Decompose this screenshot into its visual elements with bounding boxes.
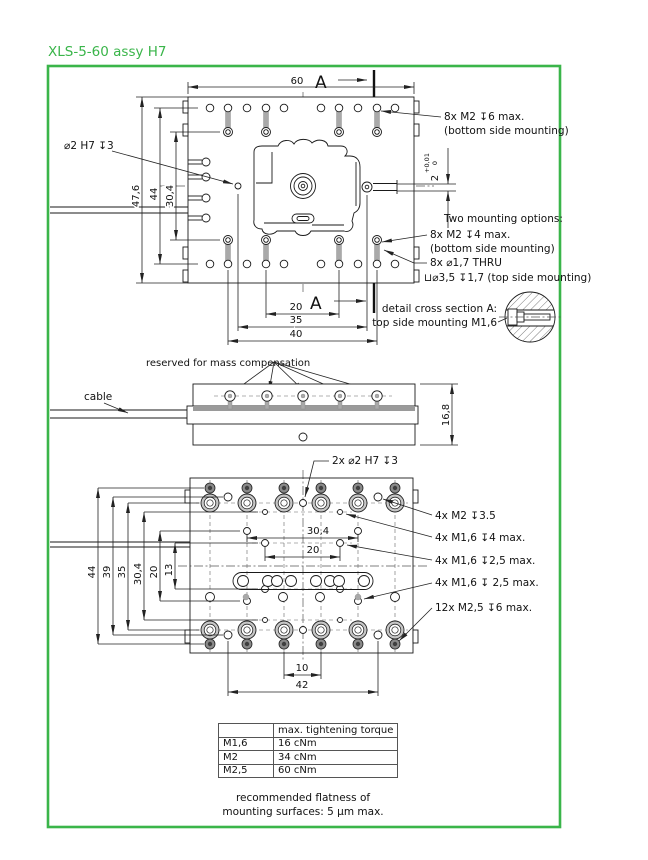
detail-caption-2: top side mounting M1,6 bbox=[372, 317, 497, 329]
note-opt1-sub: (bottom side mounting) bbox=[430, 243, 555, 255]
top-view: 60 A 47,6 44 30,4 20 35 40 A bbox=[50, 70, 591, 346]
dim-35-bot: 35 bbox=[117, 566, 128, 579]
table-header-row: max. tightening torque bbox=[219, 724, 398, 738]
bottom-view: 2x ⌀2 H7 ↧3 bbox=[50, 455, 539, 696]
note-mounting-options: Two mounting options: bbox=[443, 213, 563, 225]
note-opt2: 8x ⌀1,7 THRU bbox=[430, 257, 502, 269]
dim-step-tol-upper: +0,01 bbox=[423, 153, 431, 173]
side-view: reserved for mass compensation cable bbox=[50, 358, 458, 445]
cable-label: cable bbox=[84, 391, 112, 403]
section-label-a-bottom: A bbox=[310, 294, 322, 314]
dim-47-6: 47,6 bbox=[131, 185, 142, 207]
side-hole bbox=[299, 433, 307, 441]
dim-30-4-top: 30,4 bbox=[165, 185, 176, 207]
table-header-empty bbox=[219, 724, 274, 738]
dim-20-h: 20 bbox=[307, 545, 320, 556]
table-row: M1,6 16 cNm bbox=[219, 737, 398, 751]
dim-30-4-v: 30,4 bbox=[133, 563, 144, 585]
dim-35-top: 35 bbox=[290, 315, 303, 326]
note-opt1: 8x M2 ↧4 max. bbox=[430, 229, 510, 241]
dim-16-8: 16,8 bbox=[441, 404, 452, 426]
dowel-hole bbox=[235, 183, 241, 189]
note-8x-m2-6-sub: (bottom side mounting) bbox=[444, 125, 569, 137]
section-label-a-top: A bbox=[315, 73, 327, 93]
thread-size: M2 bbox=[219, 751, 274, 765]
drawing-page: XLS-5-60 assy H7 bbox=[0, 0, 648, 860]
note-4x-m16-25a: 4x M1,6 ↧2,5 max. bbox=[435, 555, 535, 567]
note-4x-m2: 4x M2 ↧3.5 bbox=[435, 510, 496, 522]
dim-44-bot: 44 bbox=[87, 566, 98, 579]
torque-value: 16 cNm bbox=[274, 737, 398, 751]
torque-table: max. tightening torque M1,6 16 cNm M2 34… bbox=[218, 723, 398, 778]
note-12x-m25: 12x M2,5 ↧6 max. bbox=[435, 602, 532, 614]
side-view-dimension: 16,8 bbox=[420, 384, 458, 445]
page-title: XLS-5-60 assy H7 bbox=[48, 44, 167, 60]
dim-10: 10 bbox=[296, 663, 309, 674]
dim-40-top: 40 bbox=[290, 329, 303, 340]
footer-note: recommended flatness of mounting surface… bbox=[222, 792, 383, 818]
detail-caption-1: detail cross section A: bbox=[382, 303, 497, 315]
note-dowel: ⌀2 H7 ↧3 bbox=[64, 140, 114, 152]
table-header-torque: max. tightening torque bbox=[274, 724, 398, 738]
note-4x-m16-25b: 4x M1,6 ↧ 2,5 max. bbox=[435, 577, 539, 589]
dim-60: 60 bbox=[291, 76, 304, 87]
dim-30-4-h: 30,4 bbox=[307, 526, 329, 537]
flatness-note-line1: recommended flatness of bbox=[236, 792, 370, 804]
note-4x-m16-4: 4x M1,6 ↧4 max. bbox=[435, 532, 525, 544]
dim-13: 13 bbox=[164, 564, 175, 577]
note-2x-dowel: 2x ⌀2 H7 ↧3 bbox=[332, 455, 398, 467]
torque-value: 60 cNm bbox=[274, 764, 398, 778]
detail-section-a: detail cross section A: top side mountin… bbox=[372, 290, 561, 346]
table-row: M2 34 cNm bbox=[219, 751, 398, 765]
flatness-note-line2: mounting surfaces: 5 µm max. bbox=[222, 806, 383, 818]
dim-39: 39 bbox=[102, 566, 113, 579]
dim-step-tol-lower: 0 bbox=[431, 161, 439, 165]
note-8x-m2-6: 8x M2 ↧6 max. bbox=[444, 111, 524, 123]
table-row: M2,5 60 cNm bbox=[219, 764, 398, 778]
dim-20-v: 20 bbox=[149, 566, 160, 579]
thread-size: M2,5 bbox=[219, 764, 274, 778]
dim-step-2: 2 bbox=[430, 175, 441, 181]
dim-44-top: 44 bbox=[149, 188, 160, 201]
dim-42: 42 bbox=[296, 680, 309, 691]
torque-value: 34 cNm bbox=[274, 751, 398, 765]
note-opt2-sub: ⊔⌀3,5 ↧1,7 (top side mounting) bbox=[424, 272, 591, 284]
dim-20-top: 20 bbox=[290, 302, 303, 313]
central-slot bbox=[233, 573, 373, 590]
thread-size: M1,6 bbox=[219, 737, 274, 751]
